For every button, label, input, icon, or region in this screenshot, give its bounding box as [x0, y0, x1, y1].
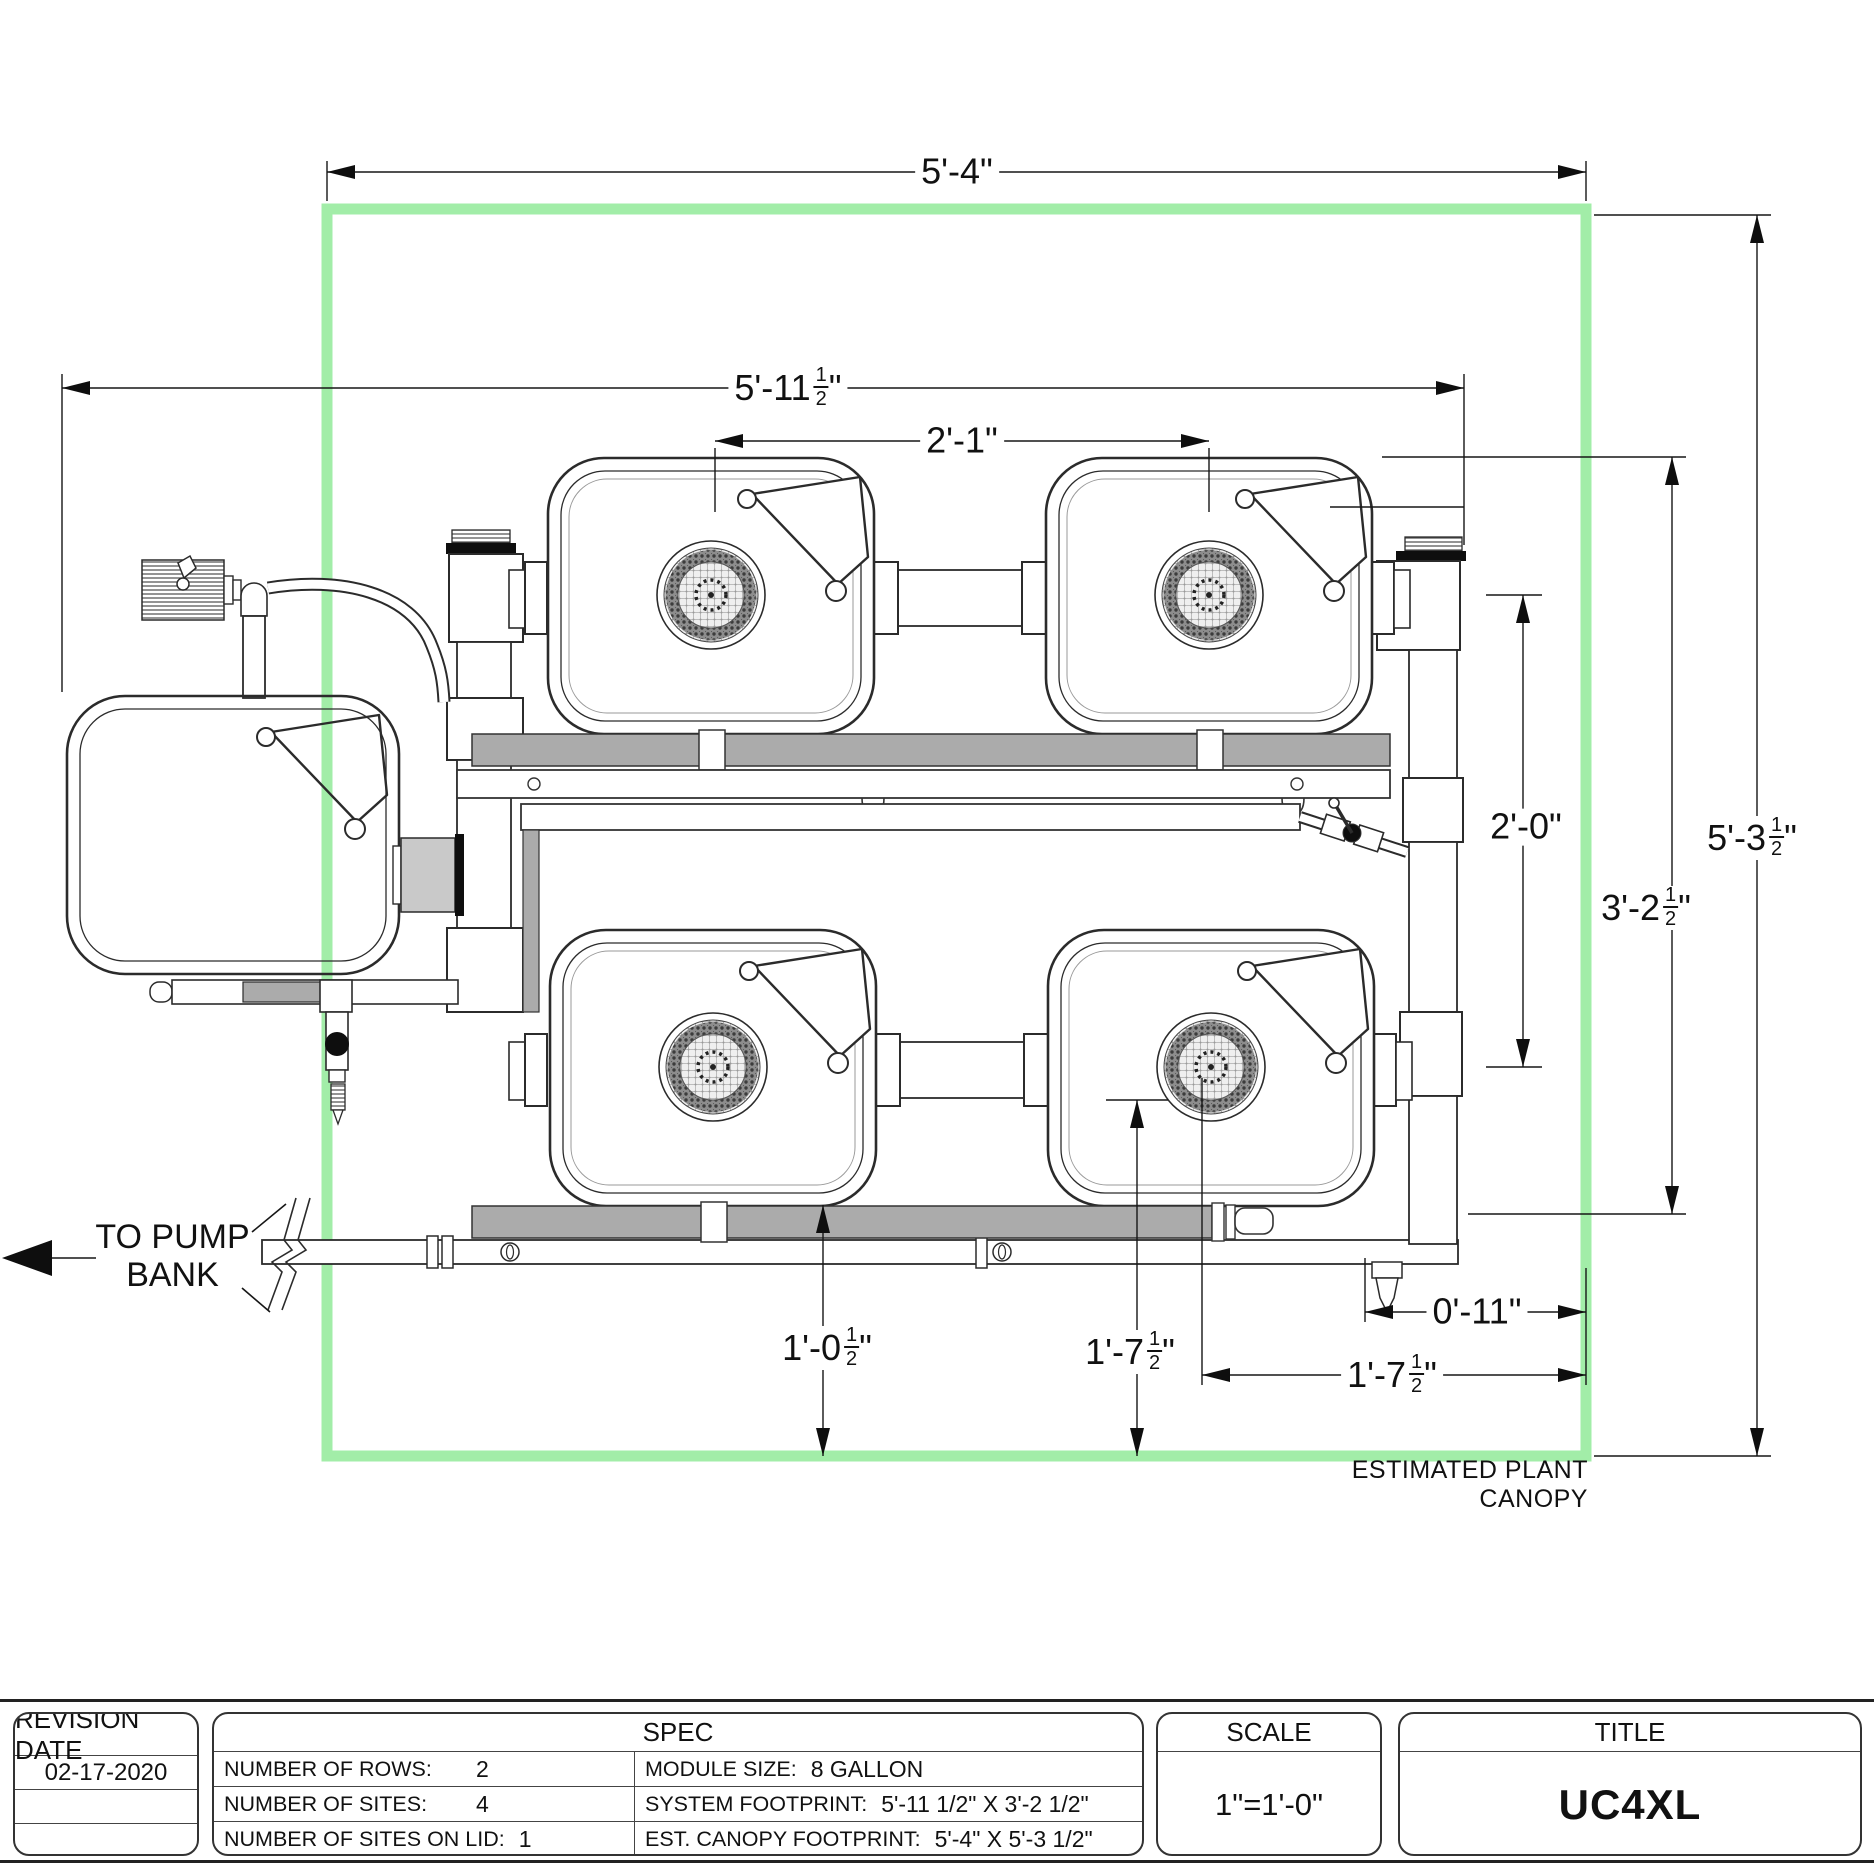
title-header: TITLE	[1400, 1714, 1860, 1752]
dim-system-width: 5'-11 12 "	[728, 366, 847, 410]
manifold-end-cap	[1235, 1208, 1273, 1234]
upper-rail-pipe	[457, 770, 1390, 798]
plant-site-port-bottom-left	[659, 1013, 767, 1121]
dim-module-to-canopy: 1'-0 12 "	[776, 1326, 878, 1370]
dim-system-depth: 3'-2 12 "	[1595, 886, 1697, 930]
scale-box: SCALE 1"=1'-0"	[1156, 1712, 1382, 1856]
scale-value: 1"=1'-0"	[1158, 1752, 1380, 1856]
revision-date-header: REVISION DATE	[15, 1714, 197, 1756]
titleblock-top-rule	[0, 1699, 1874, 1702]
tee-fitting	[241, 583, 267, 616]
dim-row-spacing: 2'-0"	[1484, 809, 1568, 846]
lower-rail-pipe	[521, 804, 1300, 830]
top-row-manifold	[472, 734, 1390, 766]
spec-row-module-size: MODULE SIZE: 8 GALLON	[635, 1752, 1142, 1787]
drawing-sheet: 5'-4" 5'-11 12 " 2'-1" 2'-0" 5'-3 12 " 3…	[0, 0, 1874, 1874]
spec-row-sites-on-lid: NUMBER OF SITES ON LID: 1	[214, 1822, 634, 1856]
plan-view-drawing	[0, 0, 1874, 1874]
plant-site-port-top-left	[657, 541, 765, 649]
spec-row-canopy-footprint: EST. CANOPY FOOTPRINT: 5'-4" X 5'-3 1/2"	[635, 1822, 1142, 1856]
revision-row-empty-1	[15, 1790, 197, 1824]
drawing-title: UC4XL	[1400, 1752, 1860, 1856]
dim-trunk-to-canopy: 0'-11"	[1426, 1294, 1527, 1331]
module-connectors	[874, 562, 1048, 1106]
drain-spigot	[1372, 1262, 1402, 1312]
dim-site-spacing: 2'-1"	[920, 423, 1004, 460]
spec-row-system-footprint: SYSTEM FOOTPRINT: 5'-11 1/2" X 3'-2 1/2"	[635, 1787, 1142, 1822]
titleblock-bottom-rule	[0, 1860, 1874, 1863]
spec-row-number-of-sites: NUMBER OF SITES: 4	[214, 1787, 634, 1822]
spec-row-number-of-rows: NUMBER OF ROWS: 2	[214, 1752, 634, 1787]
spec-header: SPEC	[214, 1714, 1142, 1752]
scale-header: SCALE	[1158, 1714, 1380, 1752]
revision-date-box: REVISION DATE 02-17-2020	[13, 1712, 199, 1856]
bottom-row-manifold	[472, 1206, 1212, 1238]
right-trunk-pipe	[1372, 537, 1466, 1244]
inter-row-valve	[1300, 798, 1407, 852]
title-box: TITLE UC4XL	[1398, 1712, 1862, 1856]
spec-box: SPEC NUMBER OF ROWS: 2 NUMBER OF SITES: …	[212, 1712, 1144, 1856]
plant-site-port-bottom-right	[1157, 1013, 1265, 1121]
dim-site-to-canopy-h: 1'-7 12 "	[1341, 1353, 1443, 1397]
dim-canopy-width: 5'-4"	[915, 154, 999, 191]
estimated-plant-canopy-label: ESTIMATED PLANT CANOPY	[1272, 1456, 1588, 1514]
plant-site-port-top-right	[1155, 541, 1263, 649]
revision-row-empty-2	[15, 1824, 197, 1856]
dim-site-to-canopy-v: 1'-7 12 "	[1079, 1330, 1181, 1374]
dim-canopy-depth: 5'-3 12 "	[1701, 816, 1803, 860]
epicenter-tank	[67, 556, 464, 1124]
to-pump-bank-label: TO PUMP BANK	[85, 1218, 260, 1294]
feed-hose	[268, 584, 444, 702]
epicenter-drain	[150, 980, 458, 1124]
